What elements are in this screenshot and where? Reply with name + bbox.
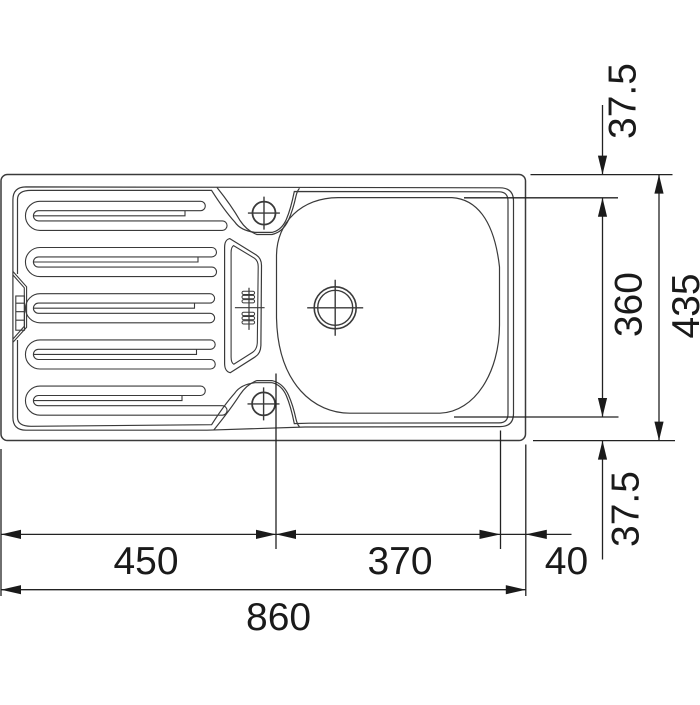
svg-text:450: 450 xyxy=(113,540,178,583)
svg-text:360: 360 xyxy=(608,272,651,337)
svg-text:40: 40 xyxy=(545,540,588,583)
svg-text:435: 435 xyxy=(665,273,700,338)
svg-text:860: 860 xyxy=(246,596,311,639)
svg-text:37.5: 37.5 xyxy=(602,63,645,139)
svg-text:37.5: 37.5 xyxy=(605,471,648,547)
svg-text:370: 370 xyxy=(367,540,432,583)
